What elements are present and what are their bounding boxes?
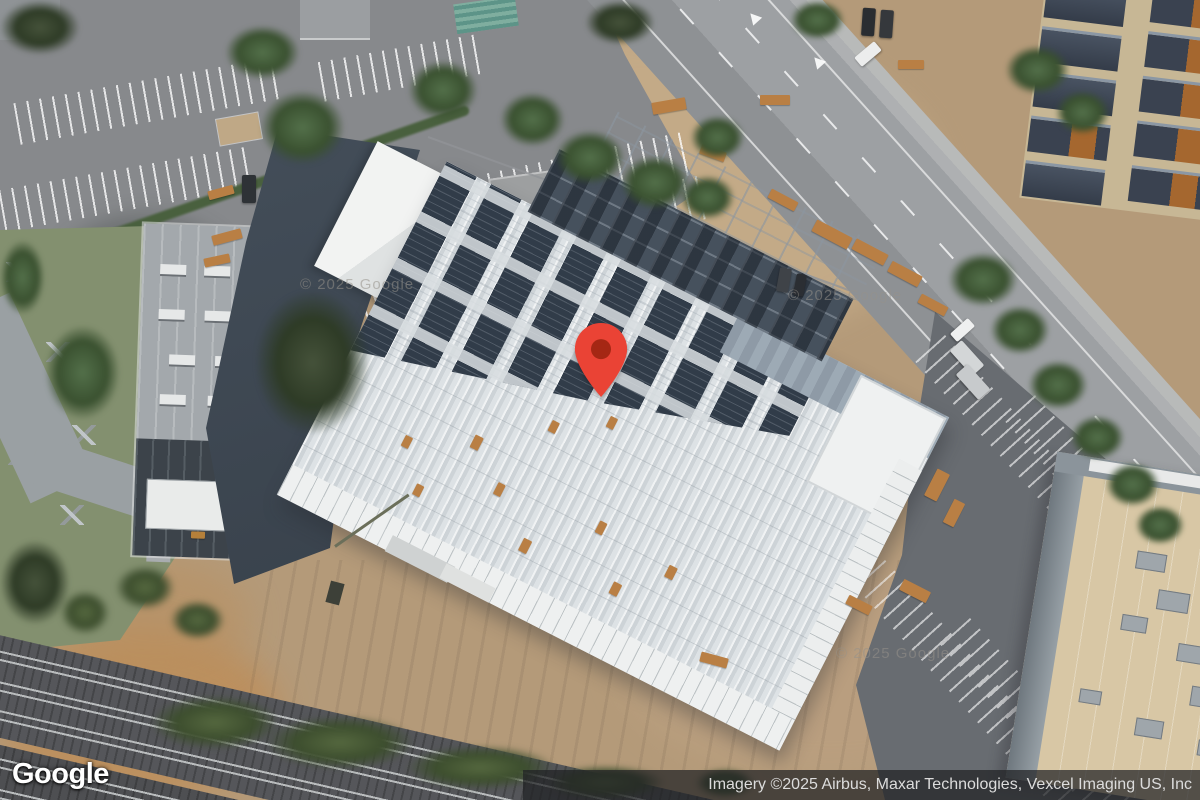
tree: [585, 0, 655, 45]
transmission-tower-icon: [60, 505, 84, 525]
attribution-text: Imagery ©2025 Airbus, Maxar Technologies…: [708, 776, 1192, 794]
substation-equipment: [158, 309, 184, 322]
hvac-unit: [1196, 739, 1200, 759]
shrub: [170, 600, 225, 640]
substation-equipment: [204, 311, 230, 324]
rowhouse-unit: [1128, 165, 1200, 210]
shrub: [150, 695, 280, 750]
tree: [690, 115, 745, 160]
lumber-pile: [760, 95, 790, 105]
rowhouse-column: [1127, 0, 1200, 220]
tree: [260, 90, 345, 165]
substation-equipment: [160, 264, 186, 277]
hvac-unit: [1134, 717, 1164, 739]
tree: [948, 252, 1018, 307]
tree: [45, 325, 120, 420]
watermark: © 2025 Google: [836, 645, 950, 662]
tree: [1005, 45, 1070, 95]
shrub: [265, 715, 415, 770]
tree: [500, 92, 565, 147]
substation-equipment: [169, 354, 195, 367]
tree: [1028, 360, 1088, 410]
rowhouse-unit: [1133, 120, 1200, 165]
hvac-unit: [1120, 614, 1148, 634]
car: [861, 8, 876, 37]
google-logo[interactable]: Google: [12, 758, 109, 791]
excavator: [242, 175, 256, 203]
car: [879, 10, 894, 39]
shrub: [115, 565, 175, 610]
hvac-unit: [1189, 686, 1200, 711]
tree: [680, 175, 735, 220]
hvac-unit: [1156, 589, 1191, 614]
tree: [225, 25, 300, 80]
map-pin-icon[interactable]: [574, 323, 628, 397]
rowhouse-unit: [1139, 76, 1200, 121]
substation-equipment: [204, 266, 230, 279]
tree: [990, 305, 1050, 355]
lumber-pile: [898, 60, 924, 69]
watermark: © 2025 Google: [788, 287, 902, 304]
hvac-unit: [1176, 643, 1200, 665]
tree: [0, 0, 80, 55]
tree: [1055, 90, 1110, 135]
tree: [255, 290, 370, 435]
shrub: [60, 590, 110, 635]
building-small: [300, 0, 370, 40]
tree: [555, 130, 625, 185]
rowhouse-unit: [1144, 31, 1200, 76]
rowhouse-unit: [1150, 0, 1200, 32]
watermark: © 2025 Google: [300, 276, 414, 293]
tree: [1105, 462, 1160, 507]
tree: [790, 0, 845, 40]
tree: [0, 240, 45, 315]
attribution-bar: Imagery ©2025 Airbus, Maxar Technologies…: [523, 770, 1200, 800]
tree: [1070, 415, 1125, 460]
substation-equipment: [159, 394, 185, 407]
map-canvas[interactable]: © 2025 Google © 2025 Google © 2025 Googl…: [0, 0, 1200, 800]
rowhouse-unit: [1022, 160, 1106, 205]
tree: [1135, 505, 1185, 545]
rowhouse-unit: [1043, 0, 1127, 27]
excavator: [191, 531, 205, 538]
hvac-unit: [1135, 550, 1167, 572]
hvac-unit: [1078, 688, 1102, 705]
tree: [408, 60, 478, 120]
